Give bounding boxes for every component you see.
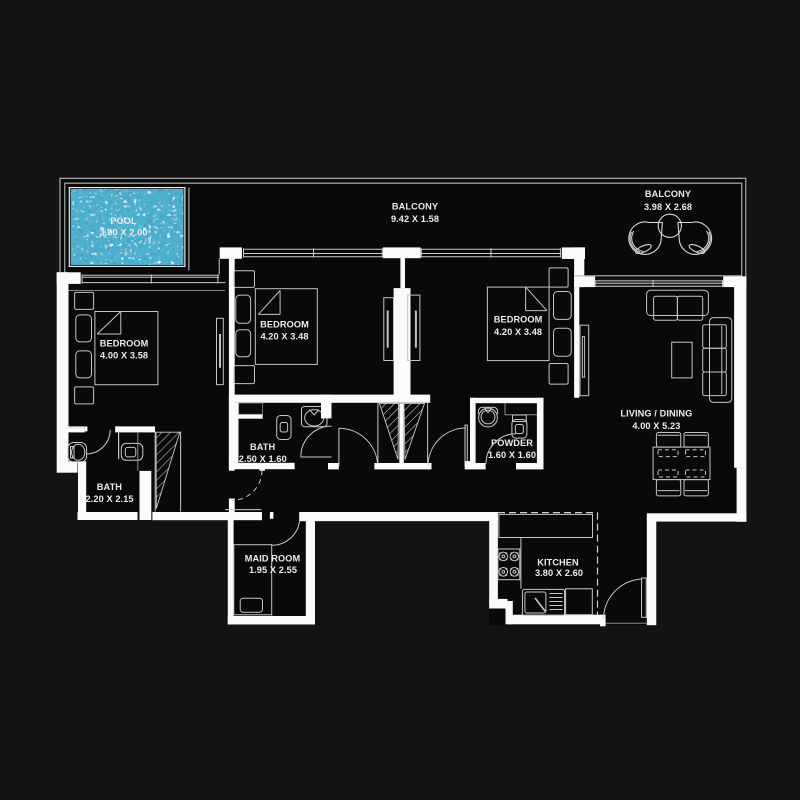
svg-text:1.60 X 1.60: 1.60 X 1.60 <box>488 450 536 460</box>
svg-text:3.98 X 2.68: 3.98 X 2.68 <box>644 202 692 212</box>
svg-text:BEDROOM: BEDROOM <box>100 338 149 348</box>
svg-text:4.00 X 5.23: 4.00 X 5.23 <box>632 421 680 431</box>
svg-text:3.80 X 2.60: 3.80 X 2.60 <box>535 568 583 578</box>
svg-text:9.42 X 1.58: 9.42 X 1.58 <box>391 214 439 224</box>
svg-text:POOL: POOL <box>110 216 137 226</box>
svg-text:BEDROOM: BEDROOM <box>260 319 309 329</box>
svg-text:4.20 X 3.48: 4.20 X 3.48 <box>260 332 308 342</box>
svg-text:MAID ROOM: MAID ROOM <box>245 553 301 563</box>
svg-text:4.00 X 3.58: 4.00 X 3.58 <box>100 351 148 361</box>
svg-text:2.50 X 1.60: 2.50 X 1.60 <box>239 454 287 464</box>
svg-text:3.00 X 2.00: 3.00 X 2.00 <box>99 228 147 238</box>
svg-text:POWDER: POWDER <box>491 438 533 448</box>
svg-text:BEDROOM: BEDROOM <box>494 314 543 324</box>
svg-text:BALCONY: BALCONY <box>392 202 438 212</box>
svg-text:LIVING / DINING: LIVING / DINING <box>620 409 692 419</box>
svg-text:BATH: BATH <box>97 482 122 492</box>
svg-text:BALCONY: BALCONY <box>645 189 691 199</box>
svg-text:1.95 X 2.55: 1.95 X 2.55 <box>249 565 297 575</box>
svg-text:KITCHEN: KITCHEN <box>537 557 579 567</box>
svg-text:BATH: BATH <box>250 442 275 452</box>
svg-text:2.20 X 2.15: 2.20 X 2.15 <box>86 494 134 504</box>
svg-text:4.20 X 3.48: 4.20 X 3.48 <box>494 327 542 337</box>
